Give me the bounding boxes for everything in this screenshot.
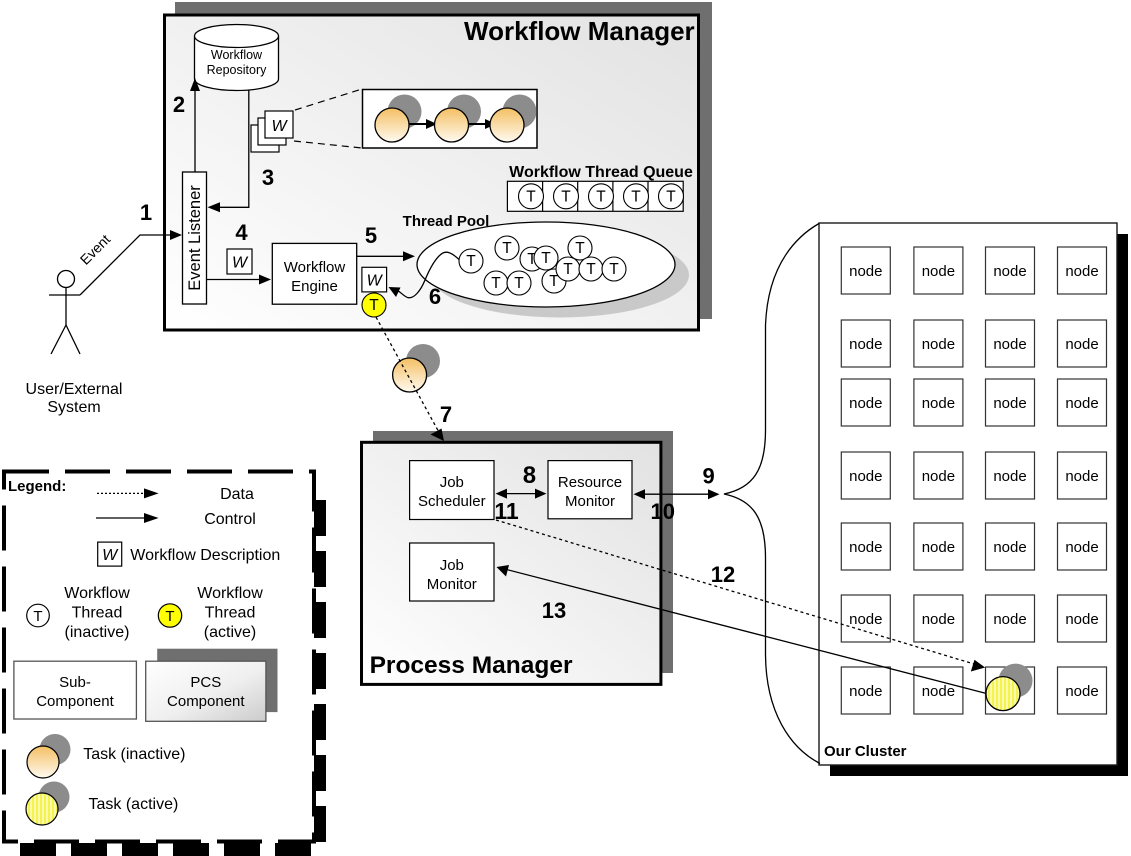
svg-text:node: node <box>849 539 882 556</box>
svg-text:Repository: Repository <box>207 63 267 77</box>
svg-text:T: T <box>502 240 512 257</box>
svg-text:node: node <box>849 683 882 700</box>
svg-text:Event Listener: Event Listener <box>186 185 204 291</box>
svg-text:node: node <box>993 336 1026 353</box>
svg-text:1: 1 <box>140 200 152 225</box>
svg-text:node: node <box>922 539 955 556</box>
svg-text:6: 6 <box>429 284 441 309</box>
svg-text:node: node <box>1065 263 1098 280</box>
svg-text:node: node <box>1065 683 1098 700</box>
svg-text:(active): (active) <box>204 624 256 641</box>
svg-text:12: 12 <box>711 562 735 587</box>
svg-text:node: node <box>993 468 1026 485</box>
svg-text:Component: Component <box>167 693 245 710</box>
svg-text:10: 10 <box>650 499 674 524</box>
svg-text:node: node <box>849 611 882 628</box>
svg-text:T: T <box>526 189 536 206</box>
svg-text:node: node <box>922 468 955 485</box>
svg-text:Engine: Engine <box>291 278 338 295</box>
svg-text:Thread: Thread <box>205 605 256 622</box>
svg-text:Workflow: Workflow <box>211 48 263 62</box>
svg-text:Resource: Resource <box>558 474 622 491</box>
svg-text:node: node <box>993 611 1026 628</box>
svg-text:T: T <box>563 261 573 278</box>
svg-text:T: T <box>631 189 641 206</box>
svg-text:node: node <box>922 611 955 628</box>
svg-text:W: W <box>102 547 119 564</box>
svg-text:13: 13 <box>542 598 566 623</box>
svg-text:Control: Control <box>204 511 256 528</box>
svg-text:T: T <box>609 261 619 278</box>
svg-text:User/External: User/External <box>26 381 123 398</box>
svg-text:T: T <box>369 297 379 314</box>
svg-text:W: W <box>271 118 288 135</box>
svg-text:T: T <box>561 189 571 206</box>
svg-text:T: T <box>514 275 524 292</box>
svg-text:Scheduler: Scheduler <box>418 493 486 510</box>
svg-text:node: node <box>1065 611 1098 628</box>
svg-text:node: node <box>922 263 955 280</box>
svg-text:T: T <box>666 189 676 206</box>
svg-text:T: T <box>586 261 596 278</box>
svg-text:Workflow: Workflow <box>284 259 346 276</box>
svg-text:System: System <box>47 399 100 416</box>
svg-text:Job: Job <box>440 474 464 491</box>
svg-text:Thread: Thread <box>72 605 123 622</box>
svg-text:8: 8 <box>523 462 536 489</box>
svg-text:Process Manager: Process Manager <box>370 652 573 679</box>
svg-text:Task (inactive): Task (inactive) <box>83 746 185 763</box>
svg-text:node: node <box>1065 468 1098 485</box>
svg-text:node: node <box>922 683 955 700</box>
svg-text:Event: Event <box>77 231 114 268</box>
svg-text:Data: Data <box>220 486 254 503</box>
svg-text:PCS: PCS <box>190 674 221 691</box>
svg-text:node: node <box>922 395 955 412</box>
svg-text:3: 3 <box>262 165 274 190</box>
svg-text:T: T <box>466 253 476 270</box>
svg-text:node: node <box>922 336 955 353</box>
svg-text:4: 4 <box>235 220 248 245</box>
svg-text:T: T <box>165 608 174 625</box>
svg-text:Monitor: Monitor <box>565 493 615 510</box>
svg-text:Legend:: Legend: <box>8 478 66 495</box>
svg-text:Workflow Description: Workflow Description <box>130 547 280 564</box>
svg-text:W: W <box>232 255 249 272</box>
svg-text:node: node <box>849 395 882 412</box>
svg-text:W: W <box>367 273 384 290</box>
svg-text:Workflow Thread Queue: Workflow Thread Queue <box>509 164 693 181</box>
svg-text:Our Cluster: Our Cluster <box>824 743 907 760</box>
svg-text:T: T <box>575 240 585 257</box>
svg-text:Monitor: Monitor <box>427 576 477 593</box>
svg-text:node: node <box>1065 336 1098 353</box>
svg-text:node: node <box>849 468 882 485</box>
svg-text:7: 7 <box>440 402 452 427</box>
svg-text:node: node <box>993 539 1026 556</box>
svg-text:Task (active): Task (active) <box>89 796 179 813</box>
svg-text:Component: Component <box>36 693 114 710</box>
svg-text:T: T <box>33 608 42 625</box>
svg-text:Job: Job <box>440 557 464 574</box>
svg-text:Workflow: Workflow <box>197 585 263 602</box>
svg-text:(inactive): (inactive) <box>65 624 130 641</box>
svg-text:Workflow: Workflow <box>64 585 130 602</box>
svg-text:T: T <box>596 189 606 206</box>
svg-text:9: 9 <box>702 464 714 489</box>
svg-text:node: node <box>1065 395 1098 412</box>
svg-text:5: 5 <box>365 223 377 248</box>
svg-text:node: node <box>849 336 882 353</box>
svg-text:node: node <box>993 395 1026 412</box>
svg-text:node: node <box>1065 539 1098 556</box>
svg-text:Sub-: Sub- <box>59 674 91 691</box>
svg-text:T: T <box>541 250 551 267</box>
svg-text:Thread Pool: Thread Pool <box>403 213 490 230</box>
svg-text:T: T <box>491 275 501 292</box>
svg-text:2: 2 <box>173 92 185 117</box>
svg-text:node: node <box>993 263 1026 280</box>
svg-text:Workflow Manager: Workflow Manager <box>464 16 695 46</box>
svg-text:node: node <box>849 263 882 280</box>
